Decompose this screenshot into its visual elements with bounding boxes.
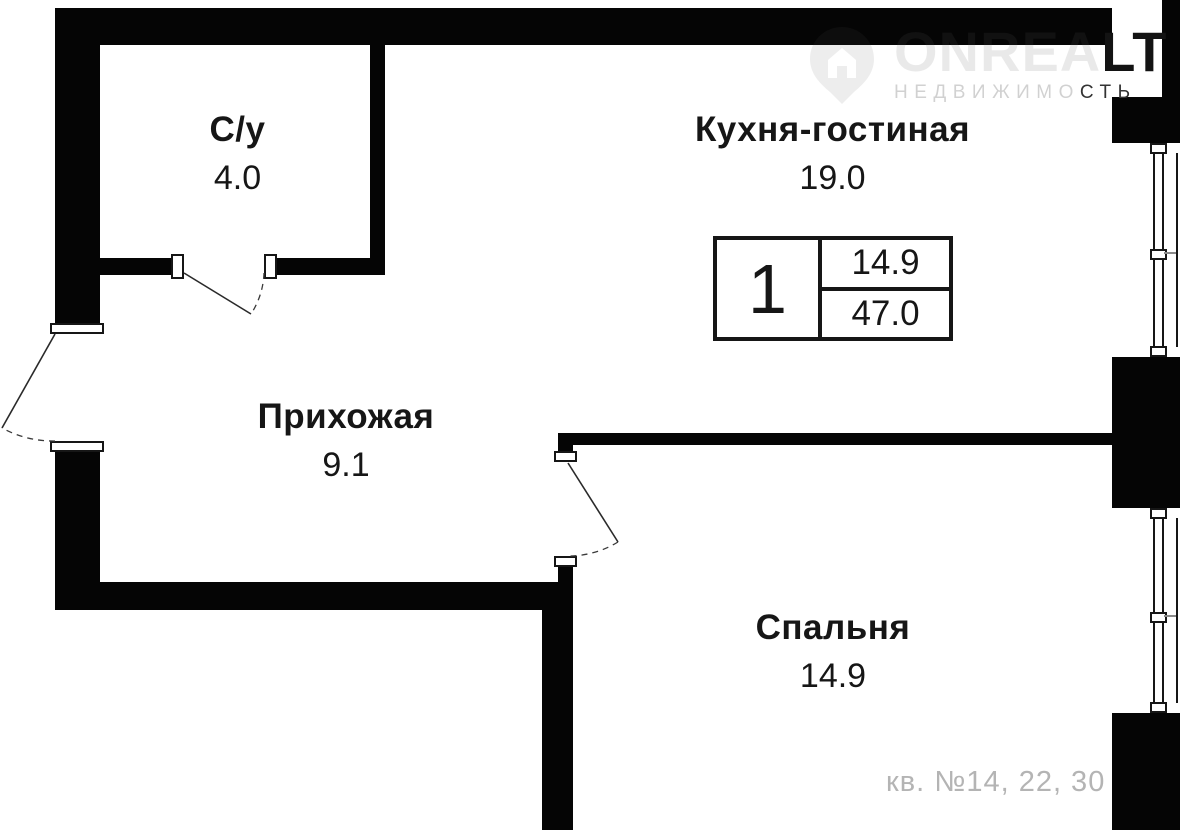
bathroom-door-leaf [184,273,251,314]
apartment-info-box: 1 14.9 47.0 [713,236,953,341]
bathroom-area: 4.0 [150,160,325,196]
info-box-areas: 14.9 47.0 [822,240,949,337]
kitchen-living-name: Кухня-гостиная [655,112,1010,148]
bedroom-area: 14.9 [718,658,948,694]
kitchen-living-area: 19.0 [655,160,1010,196]
bathroom-name: С/у [150,112,325,148]
tagline-dark-part: СТЬ [1080,82,1137,103]
hallway-name: Прихожая [232,399,460,435]
room-label-bathroom: С/у 4.0 [150,112,325,196]
room-label-hallway: Прихожая 9.1 [232,399,460,483]
rooms-count: 1 [717,240,822,337]
tagline-light-part: НЕДВИЖИМО [894,82,1080,103]
onrealt-logo-text: ONREALT НЕДВИЖИМОСТЬ [894,22,1168,103]
bathroom-door-arc [251,273,264,314]
floor-plan: ONREALT НЕДВИЖИМОСТЬ С/у 4.0 Кухня-гости… [0,0,1180,830]
room-label-kitchen-living: Кухня-гостиная 19.0 [655,112,1010,196]
bedroom-door-leaf [568,463,618,542]
hallway-area: 9.1 [232,447,460,483]
onrealt-brand: ONREALT [894,22,1168,82]
entrance-door-arc [2,428,55,441]
bedroom-name: Спальня [718,610,948,646]
onrealt-pin-icon [806,24,878,112]
bedroom-door-arc [568,542,618,556]
apartment-numbers-note: кв. №14, 22, 30 [886,766,1105,799]
entrance-door-leaf [2,334,55,428]
onrealt-logo: ONREALT НЕДВИЖИМОСТЬ [806,22,1166,102]
room-label-bedroom: Спальня 14.9 [718,610,948,694]
living-area-value: 14.9 [822,240,949,291]
brand-light-part: ONREA [894,20,1101,83]
onrealt-tagline: НЕДВИЖИМОСТЬ [894,83,1168,103]
total-area-value: 47.0 [822,291,949,338]
brand-dark-part: LT [1101,20,1167,83]
